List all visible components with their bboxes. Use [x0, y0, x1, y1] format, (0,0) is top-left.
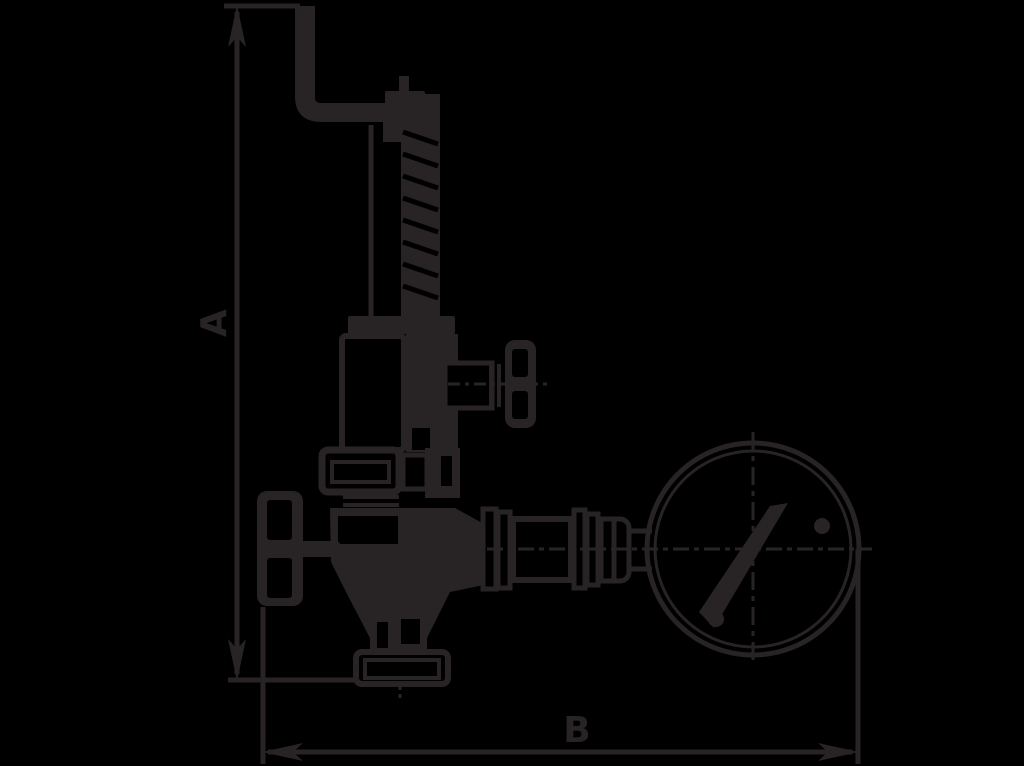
dimension-b-label: B — [563, 710, 590, 751]
dial-screw — [708, 611, 724, 627]
housing-slot — [412, 428, 430, 450]
side-outlet-handwheel — [445, 340, 548, 428]
housing-top-flange — [348, 316, 455, 334]
drawing-canvas: A B — [0, 0, 1024, 766]
valve-drawing: A B — [0, 0, 1024, 766]
neck-slot — [377, 622, 388, 648]
dial-screw — [814, 518, 830, 534]
gland-flange — [322, 448, 460, 505]
handwheel-opening — [267, 558, 292, 598]
neck-slot — [401, 619, 420, 644]
handwheel-opening — [512, 391, 528, 419]
shoulder-slot — [441, 456, 452, 486]
bolt-boss — [403, 455, 427, 489]
spring-housing — [342, 316, 458, 452]
body-pocket — [338, 516, 398, 544]
dimension-a-label: A — [194, 309, 235, 337]
housing-shell — [342, 336, 404, 450]
handwheel-opening — [267, 500, 292, 540]
wheel-stem — [303, 541, 335, 557]
handwheel-opening — [512, 349, 528, 377]
gauge-needle — [699, 503, 788, 628]
